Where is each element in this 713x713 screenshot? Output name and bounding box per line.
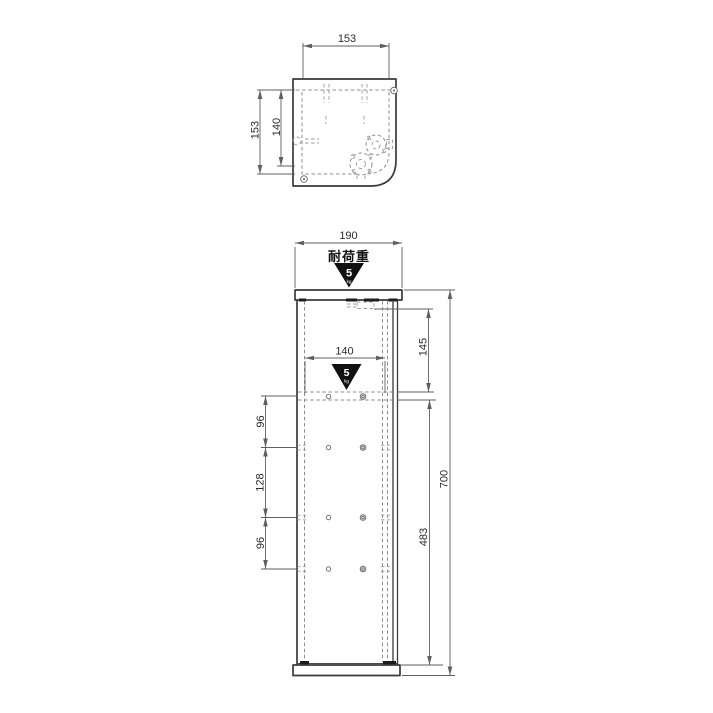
top-view-hidden-lines (293, 84, 393, 174)
load-value-top: 5 (346, 268, 352, 280)
dim-front-145-value: 145 (418, 338, 430, 356)
screw-hole-top-right-center (393, 89, 395, 91)
load-unit-top: kg (347, 279, 352, 284)
front-base (293, 665, 400, 676)
dim-front-700-value: 700 (439, 470, 451, 488)
load-unit-shelf: kg (344, 379, 349, 384)
dim-top-width: 153 (303, 33, 389, 78)
dim-left-seg2-value: 128 (255, 473, 267, 491)
front-shelf-holes (297, 394, 390, 572)
dim-left-seg1-value: 96 (255, 415, 267, 427)
dim-left-seg3-value: 96 (255, 537, 267, 549)
dim-front-shelf-width-value: 140 (335, 346, 353, 358)
mount-hardware-mid2 (364, 299, 379, 302)
dim-front-left-chain: 96 128 96 (255, 396, 298, 569)
front-view: 耐荷重 5 kg (255, 230, 456, 676)
dim-top-depth-inner: 140 (271, 90, 295, 166)
load-capacity-badge-top: 耐荷重 5 kg (328, 249, 370, 288)
technical-drawing: 153 153 140 耐荷重 5 kg (0, 0, 713, 713)
mount-hardware-mid1 (346, 299, 357, 302)
load-capacity-label: 耐荷重 (328, 249, 370, 264)
front-top-plate (295, 290, 402, 309)
dim-front-483: 483 (397, 400, 443, 665)
top-view: 153 153 140 (250, 33, 398, 186)
dim-top-width-value: 153 (338, 33, 356, 45)
dim-top-depth-value: 153 (250, 121, 262, 139)
dim-top-depth-inner-value: 140 (271, 118, 283, 136)
dim-front-483-value: 483 (418, 528, 430, 546)
screw-hole-bottom-left-center (303, 178, 305, 180)
dim-front-width-value: 190 (339, 230, 357, 242)
hidden-bracket (357, 302, 374, 309)
load-value-shelf: 5 (344, 367, 350, 379)
load-capacity-badge-shelf: 5 kg (332, 364, 362, 390)
drawing-canvas: 153 153 140 耐荷重 5 kg (0, 0, 713, 713)
